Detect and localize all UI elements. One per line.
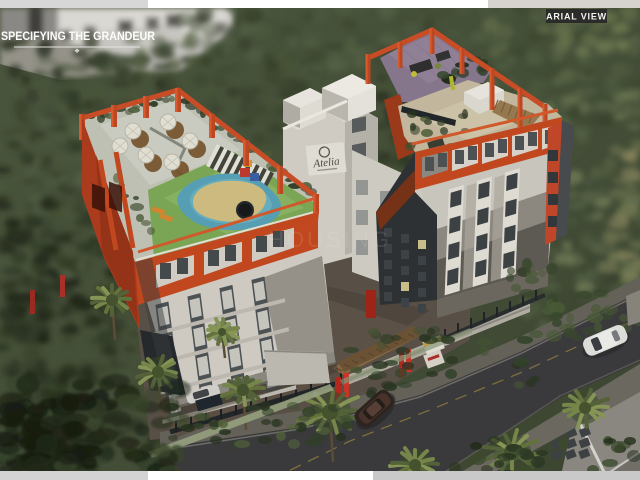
svg-text:ARIAL VIEW: ARIAL VIEW — [546, 12, 607, 22]
svg-text:SPECIFYING THE GRANDEUR: SPECIFYING THE GRANDEUR — [1, 31, 156, 43]
svg-text:❖: ❖ — [74, 48, 80, 55]
